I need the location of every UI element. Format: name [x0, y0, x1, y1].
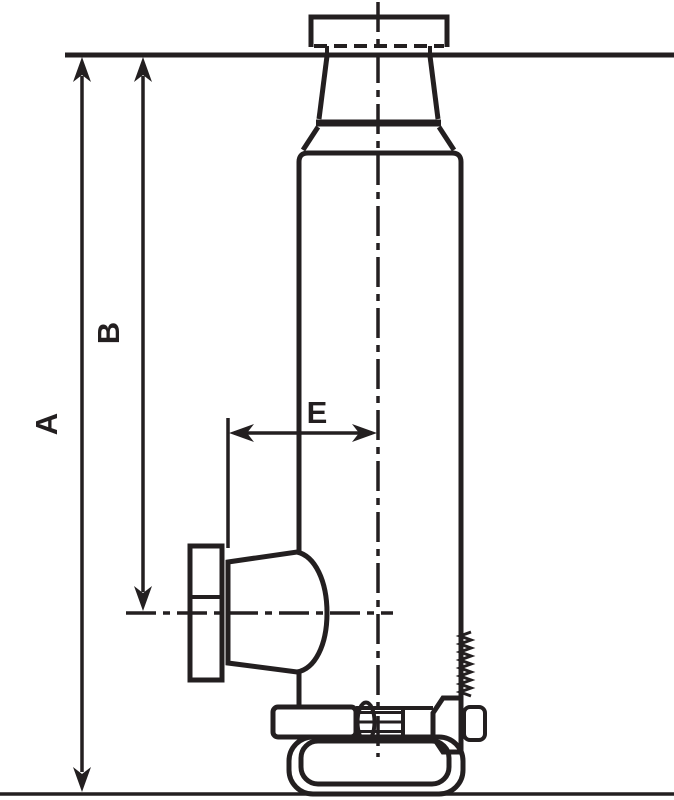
ram-flare-right [439, 127, 454, 150]
cylinder-body [299, 153, 461, 707]
dimension-b-label: B [91, 322, 126, 344]
bottle-jack-dimension-drawing: A B E [0, 0, 674, 800]
center-lines [126, 2, 393, 757]
dimension-b: B [91, 57, 152, 611]
dimension-a: A [29, 57, 91, 792]
dimension-e: E [228, 395, 377, 548]
valve-rod [273, 707, 356, 737]
ram-taper-right [430, 56, 438, 119]
ram-taper-left [319, 56, 327, 119]
ram-flare-left [303, 127, 318, 150]
dimension-a-label: A [29, 413, 64, 435]
base-inner-outline [301, 741, 449, 784]
valve-end-cap [464, 707, 485, 740]
dimension-e-label: E [307, 395, 328, 430]
technical-drawing-canvas: A B E [0, 0, 674, 800]
